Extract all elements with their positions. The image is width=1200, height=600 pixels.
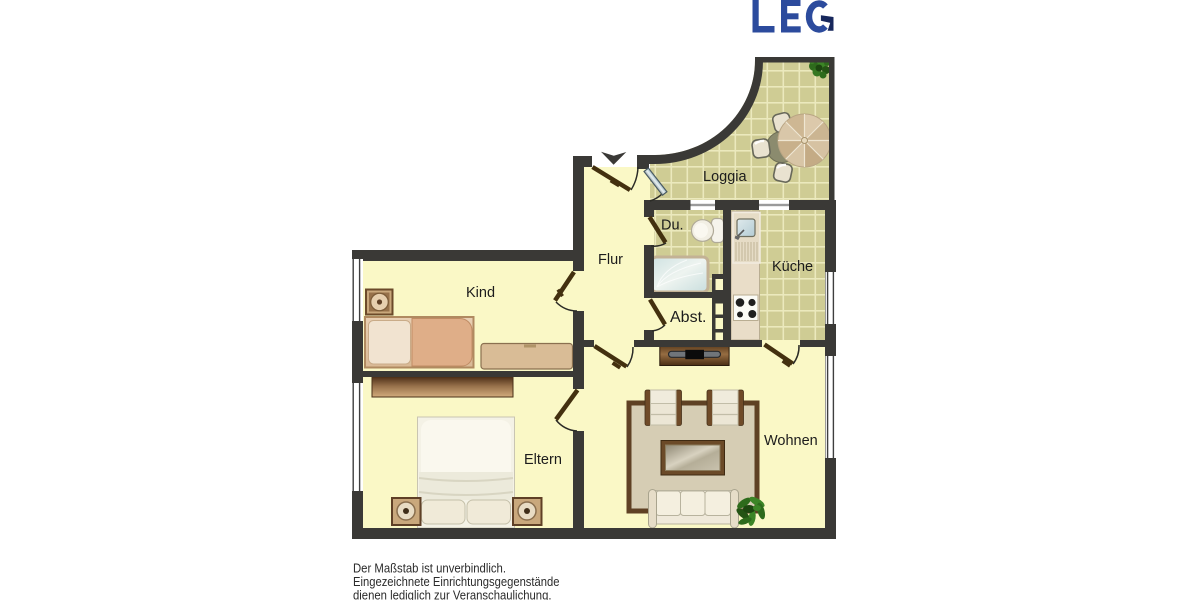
svg-text:Loggia: Loggia [703, 169, 747, 185]
svg-text:Küche: Küche [772, 259, 813, 275]
svg-text:Wohnen: Wohnen [764, 433, 818, 449]
svg-text:dienen lediglich zur Veranscha: dienen lediglich zur Veranschaulichung. [353, 588, 552, 600]
svg-text:Du.: Du. [661, 218, 684, 234]
svg-text:Flur: Flur [598, 252, 623, 268]
svg-text:Kind: Kind [466, 285, 495, 301]
svg-text:Eltern: Eltern [524, 452, 562, 468]
svg-text:Abst.: Abst. [670, 309, 706, 326]
